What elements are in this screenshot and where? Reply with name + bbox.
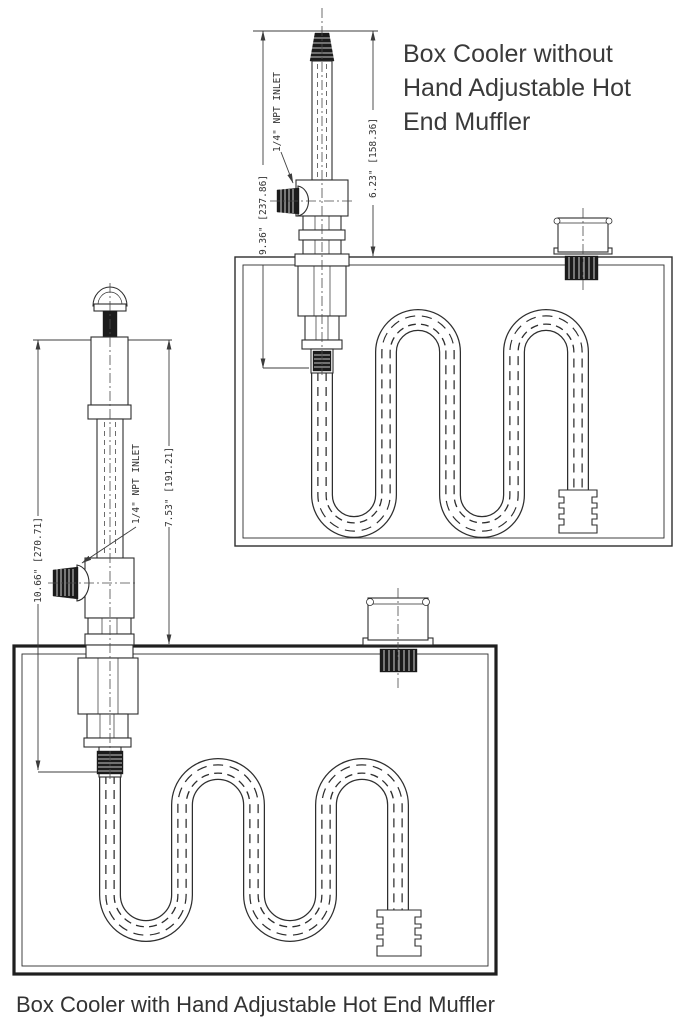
inlet-label: 1/4" NPT INLET <box>272 72 283 152</box>
cup-ear-left <box>554 218 560 224</box>
dim-text-overall: 10.66" [270.71] <box>33 517 44 603</box>
body-hex <box>78 658 138 714</box>
bottom-hot-end-block <box>377 910 421 956</box>
dim-text-upper: 7.53" [191.21] <box>164 447 175 527</box>
collar-inner <box>84 738 131 747</box>
dim-text-upper: 6.23" [158.36] <box>368 118 379 198</box>
muffler-collar <box>88 405 131 419</box>
caption-with-muffler: Box Cooler with Hand Adjustable Hot End … <box>16 992 495 1017</box>
caption-without-muffler-line1: Box Cooler without <box>403 40 613 68</box>
bottom-cooling-coil <box>110 769 398 931</box>
mounting-flange <box>86 645 133 658</box>
cup-threads <box>380 649 417 672</box>
box-cooler-drawing-canvas: 9.36" [237.86] 6.23" [158.36] 1/4" NPT I… <box>0 0 679 1024</box>
cup-ear-left <box>367 599 374 606</box>
caption-without-muffler-line2: Hand Adjustable Hot <box>403 74 631 102</box>
hex-nut-inner <box>87 714 128 738</box>
cup-ear-right <box>423 599 430 606</box>
muffler-body <box>91 337 128 405</box>
inlet-leader-line <box>281 152 293 183</box>
tee-body <box>85 558 134 618</box>
cup-threads <box>565 256 598 280</box>
dim-text-overall: 9.36" [237.86] <box>258 175 269 255</box>
cup-ear-right <box>606 218 612 224</box>
bottom-cooler-assembly <box>53 287 138 777</box>
collar <box>85 634 134 645</box>
caption-without-muffler-line3: End Muffler <box>403 108 530 136</box>
bottom-drawing-box-cooler-with-muffler: 10.66" [270.71] 7.53" [191.21] 1/4" NPT … <box>14 283 496 974</box>
inlet-label: 1/4" NPT INLET <box>131 444 142 524</box>
top-hot-end-block <box>559 490 597 533</box>
top-cooler-assembly <box>277 33 349 373</box>
top-cooling-coil <box>322 320 578 527</box>
hex-nut-upper <box>88 618 131 634</box>
technical-drawing-page: 9.36" [237.86] 6.23" [158.36] 1/4" NPT I… <box>0 0 679 1024</box>
